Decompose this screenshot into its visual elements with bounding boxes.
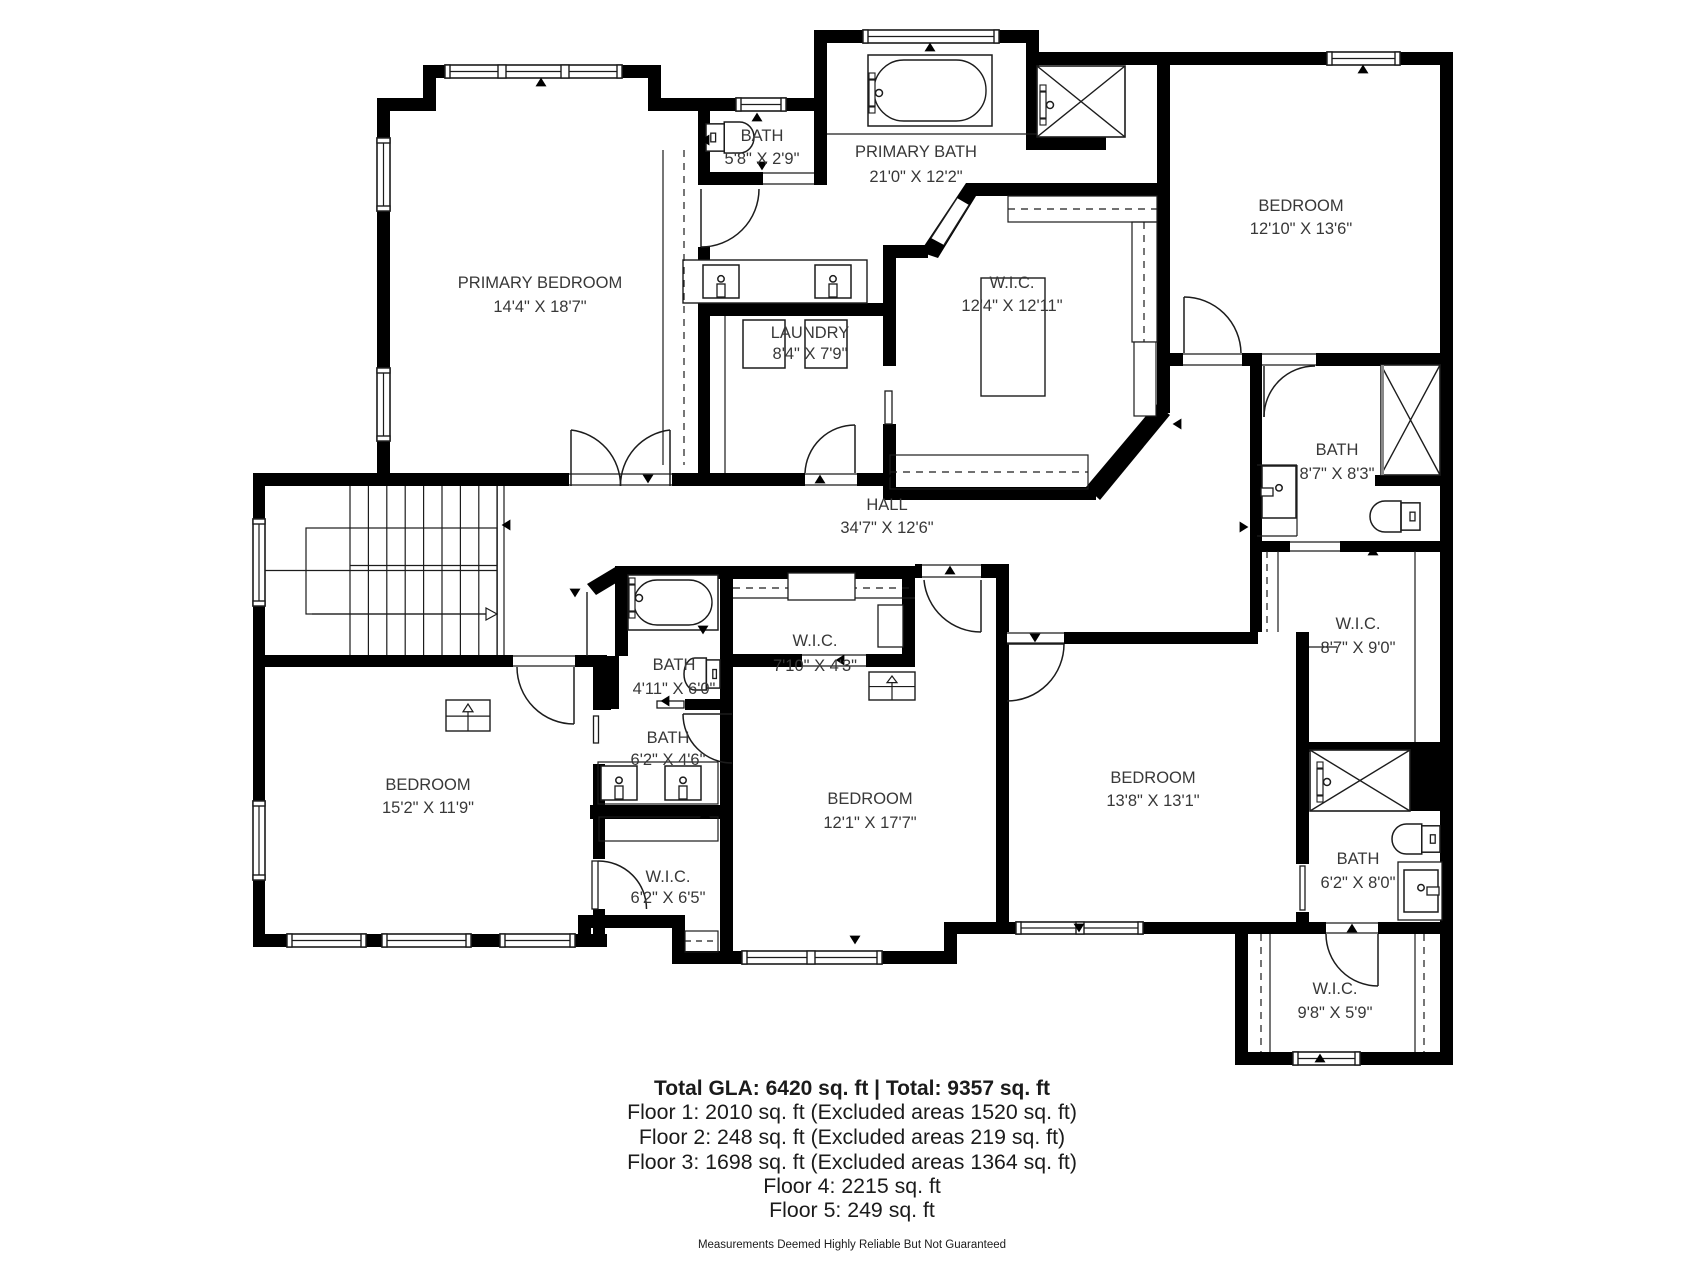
- svg-text:BEDROOM: BEDROOM: [1258, 197, 1343, 215]
- svg-text:BATH: BATH: [1316, 441, 1359, 459]
- svg-text:6'2" X 8'0": 6'2" X 8'0": [1321, 874, 1396, 892]
- svg-text:Floor 1: 2010 sq. ft (Excluded: Floor 1: 2010 sq. ft (Excluded areas 152…: [627, 1100, 1077, 1124]
- svg-text:BEDROOM: BEDROOM: [827, 790, 912, 808]
- svg-text:PRIMARY BATH: PRIMARY BATH: [855, 143, 977, 161]
- svg-text:12'10" X 13'6": 12'10" X 13'6": [1250, 220, 1353, 238]
- svg-text:8'7" X 9'0": 8'7" X 9'0": [1321, 639, 1396, 657]
- svg-text:34'7" X 12'6": 34'7" X 12'6": [840, 519, 933, 537]
- svg-text:15'2" X 11'9": 15'2" X 11'9": [382, 799, 474, 817]
- svg-text:BATH: BATH: [653, 656, 696, 674]
- svg-text:LAUNDRY: LAUNDRY: [771, 324, 850, 342]
- svg-text:4'11" X 6'0": 4'11" X 6'0": [633, 680, 716, 698]
- svg-text:8'7" X 8'3": 8'7" X 8'3": [1300, 465, 1375, 483]
- svg-text:Floor 5: 249 sq. ft: Floor 5: 249 sq. ft: [769, 1198, 935, 1222]
- svg-text:21'0" X 12'2": 21'0" X 12'2": [869, 168, 962, 186]
- svg-text:BEDROOM: BEDROOM: [385, 776, 470, 794]
- svg-text:9'8" X 5'9": 9'8" X 5'9": [1298, 1004, 1373, 1022]
- svg-text:W.I.C.: W.I.C.: [990, 274, 1035, 292]
- svg-text:PRIMARY BEDROOM: PRIMARY BEDROOM: [458, 274, 622, 292]
- svg-text:Total GLA: 6420 sq. ft | Total: Total GLA: 6420 sq. ft | Total: 9357 sq.…: [654, 1077, 1050, 1100]
- svg-text:6'2" X 4'6": 6'2" X 4'6": [631, 751, 706, 769]
- svg-text:Floor 2: 248 sq. ft (Excluded: Floor 2: 248 sq. ft (Excluded areas 219 …: [639, 1125, 1065, 1149]
- svg-text:BEDROOM: BEDROOM: [1110, 769, 1195, 787]
- svg-text:Floor 4: 2215 sq. ft: Floor 4: 2215 sq. ft: [763, 1174, 941, 1198]
- svg-text:W.I.C.: W.I.C.: [646, 868, 691, 886]
- svg-text:14'4" X 18'7": 14'4" X 18'7": [493, 298, 586, 316]
- svg-text:13'8" X 13'1": 13'8" X 13'1": [1106, 792, 1199, 810]
- svg-text:8'4" X 7'9": 8'4" X 7'9": [773, 345, 848, 363]
- svg-text:Measurements Deemed Highly Rel: Measurements Deemed Highly Reliable But …: [698, 1239, 1006, 1251]
- svg-text:BATH: BATH: [741, 127, 784, 145]
- svg-text:W.I.C.: W.I.C.: [793, 632, 838, 650]
- svg-text:BATH: BATH: [647, 729, 690, 747]
- svg-text:12'1" X 17'7": 12'1" X 17'7": [823, 814, 916, 832]
- svg-text:W.I.C.: W.I.C.: [1313, 980, 1358, 998]
- svg-text:6'2" X 6'5": 6'2" X 6'5": [631, 889, 706, 907]
- svg-text:12'4" X 12'11": 12'4" X 12'11": [961, 297, 1062, 315]
- svg-text:5'8" X 2'9": 5'8" X 2'9": [725, 150, 800, 168]
- svg-text:HALL: HALL: [866, 496, 907, 514]
- svg-text:Floor 3: 1698 sq. ft (Excluded: Floor 3: 1698 sq. ft (Excluded areas 136…: [627, 1150, 1077, 1174]
- svg-text:BATH: BATH: [1337, 850, 1380, 868]
- svg-text:7'10" X 4'3": 7'10" X 4'3": [773, 657, 857, 675]
- svg-text:W.I.C.: W.I.C.: [1336, 615, 1381, 633]
